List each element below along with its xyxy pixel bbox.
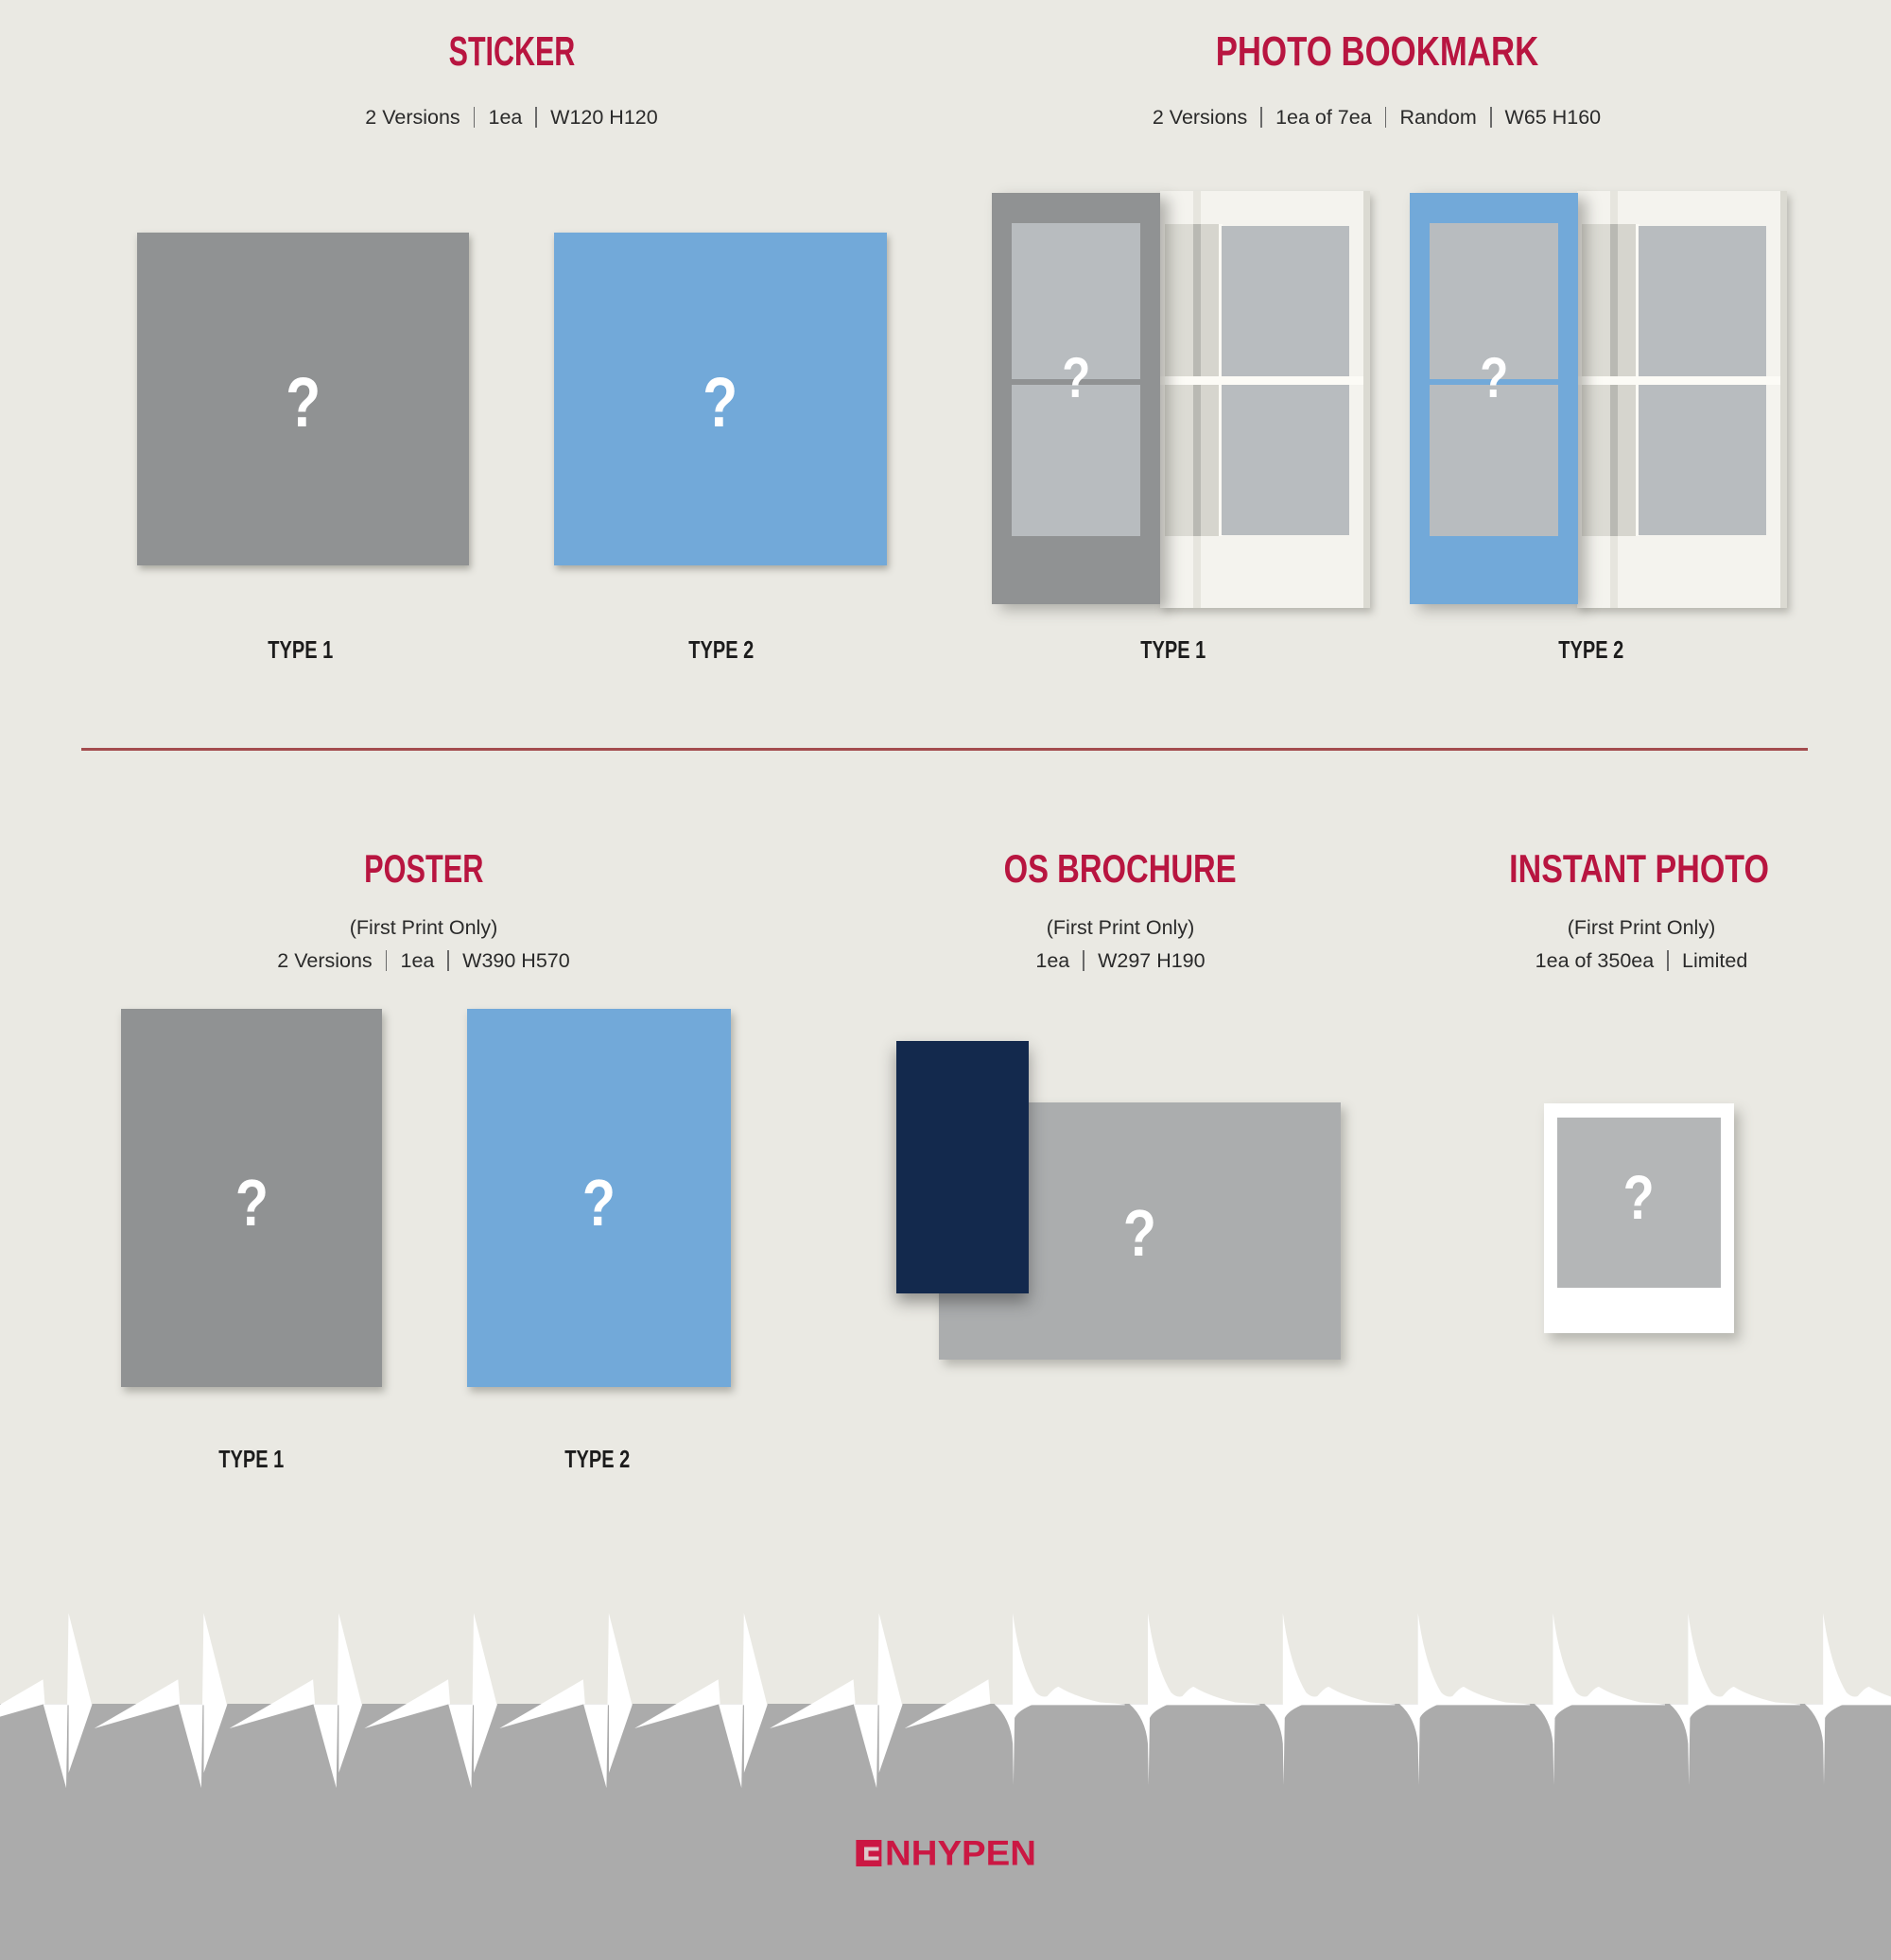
svg-text:NHYPEN: NHYPEN bbox=[885, 1834, 1036, 1873]
